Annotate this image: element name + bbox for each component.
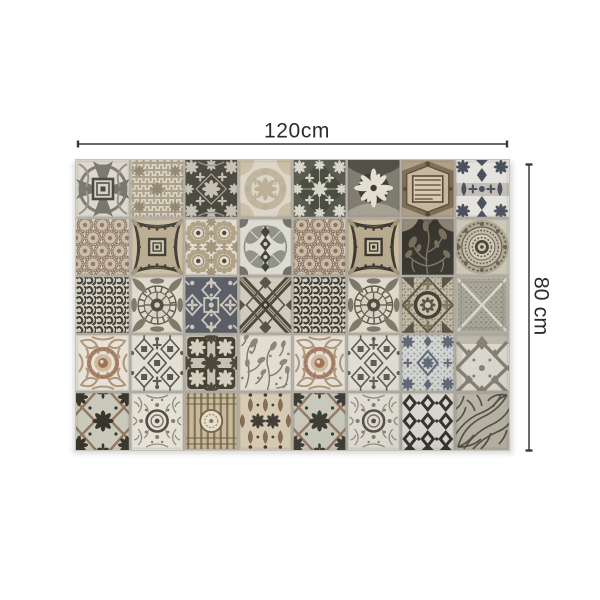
svg-text:80 cm: 80 cm: [530, 277, 554, 336]
svg-text:120cm: 120cm: [264, 120, 330, 143]
